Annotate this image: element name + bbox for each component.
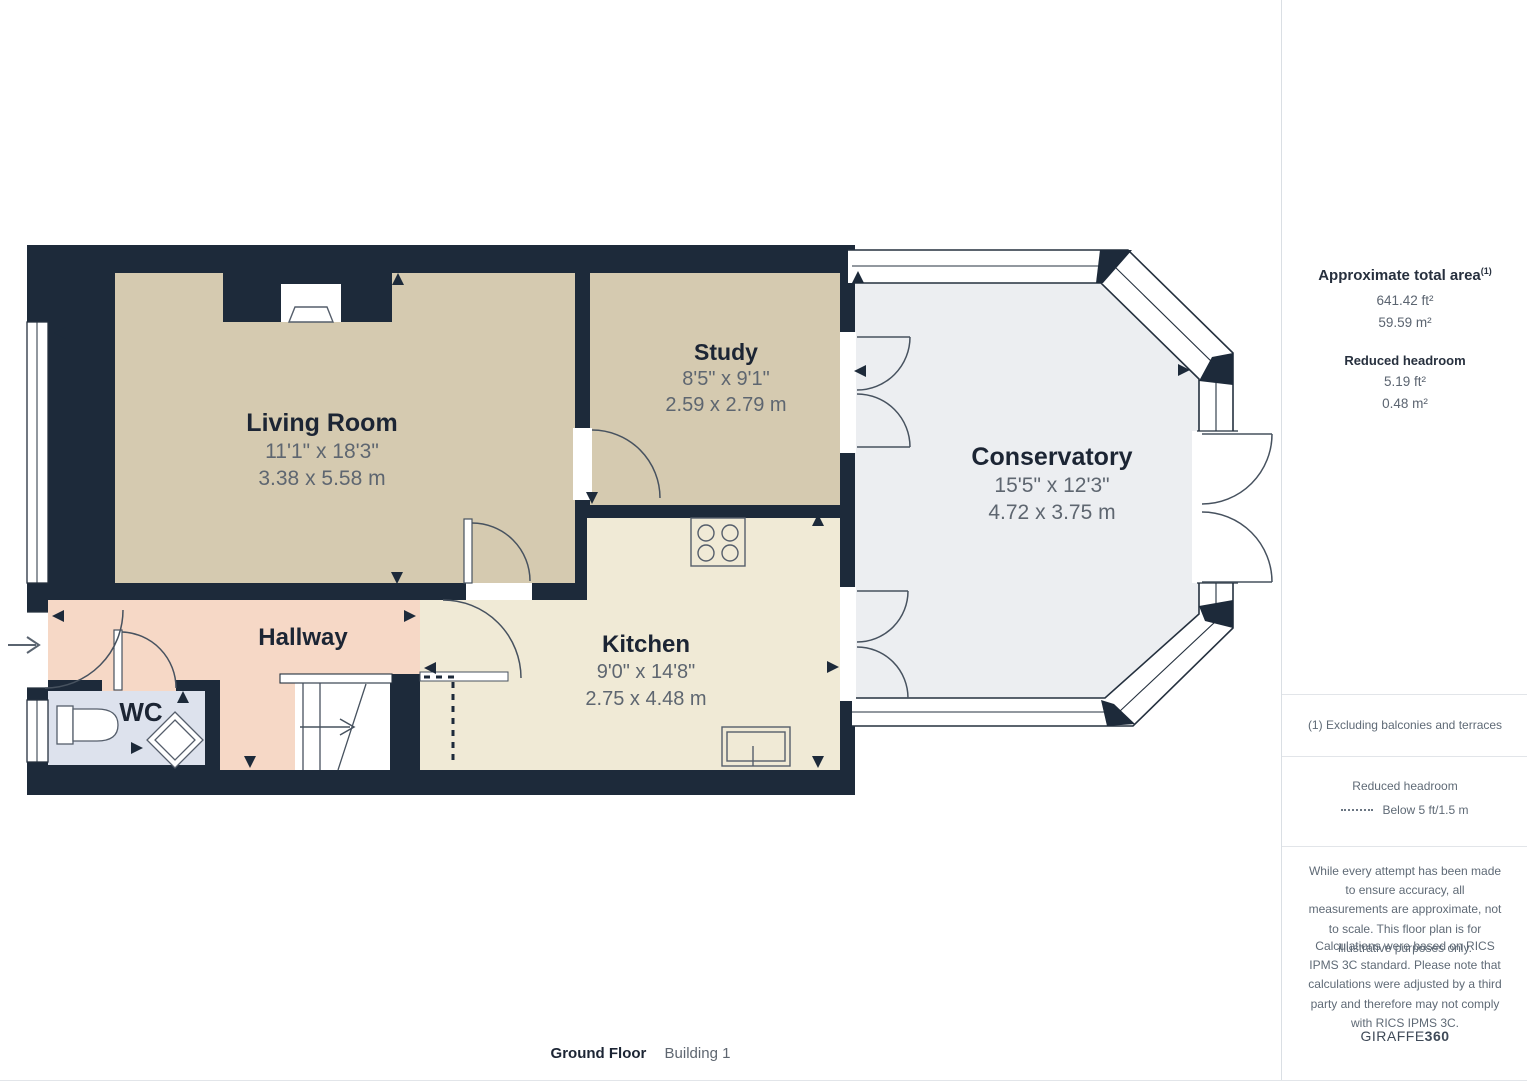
room-dim-ft: 8'5" x 9'1" bbox=[665, 366, 786, 392]
building-name: Building 1 bbox=[665, 1045, 731, 1062]
sidebar-divider bbox=[1282, 756, 1527, 757]
reduced-headroom-ft: 5.19 ft² bbox=[1282, 374, 1527, 389]
sidebar-divider bbox=[1282, 694, 1527, 695]
plan-footer: Ground Floor Building 1 bbox=[0, 1045, 1281, 1062]
legend-title: Reduced headroom bbox=[1282, 779, 1527, 793]
kitchen-door-leaf bbox=[420, 672, 508, 681]
living-door-opening bbox=[466, 583, 532, 600]
legend-label: Below 5 ft/1.5 m bbox=[1382, 803, 1468, 817]
room-name: WC bbox=[119, 698, 162, 726]
room-label-living-room: Living Room 11'1" x 18'3" 3.38 x 5.58 m bbox=[246, 408, 397, 492]
total-area-superscript: (1) bbox=[1481, 266, 1492, 276]
room-dim-ft: 11'1" x 18'3" bbox=[246, 438, 397, 465]
room-name: Conservatory bbox=[971, 442, 1132, 472]
kitchen-conservatory-opening bbox=[840, 587, 856, 701]
toilet bbox=[57, 706, 118, 744]
room-label-hallway: Hallway bbox=[258, 624, 347, 652]
floorplan-page: Living Room 11'1" x 18'3" 3.38 x 5.58 m … bbox=[0, 0, 1527, 1081]
room-label-conservatory: Conservatory 15'5" x 12'3" 4.72 x 3.75 m bbox=[971, 442, 1132, 526]
room-label-kitchen: Kitchen 9'0" x 14'8" 2.75 x 4.48 m bbox=[585, 630, 706, 713]
living-door-leaf bbox=[464, 519, 472, 583]
wc-wall-bottom bbox=[48, 765, 205, 775]
total-area-title-text: Approximate total area bbox=[1318, 267, 1481, 284]
room-dim-ft: 9'0" x 14'8" bbox=[585, 659, 706, 686]
sidebar-divider bbox=[1282, 846, 1527, 847]
brand-logo: GIRAFFE360 bbox=[1282, 1028, 1527, 1044]
study-door-opening bbox=[573, 428, 592, 500]
total-area-m: 59.59 m² bbox=[1282, 315, 1527, 330]
living-room-alcove-left bbox=[115, 273, 223, 323]
room-label-wc: WC bbox=[119, 698, 162, 726]
total-area-ft: 641.42 ft² bbox=[1282, 293, 1527, 308]
info-sidebar: Approximate total area(1) 641.42 ft² 59.… bbox=[1281, 0, 1527, 1080]
fireplace bbox=[281, 284, 341, 322]
wc-wall-right bbox=[205, 683, 220, 770]
living-room-alcove-right bbox=[392, 273, 575, 323]
study-conservatory-opening bbox=[840, 332, 856, 453]
stairs-bulkhead bbox=[280, 674, 392, 683]
room-name: Hallway bbox=[258, 624, 347, 652]
stairs bbox=[280, 674, 420, 770]
brand-name: GIRAFFE bbox=[1360, 1028, 1424, 1044]
room-label-study: Study 8'5" x 9'1" 2.59 x 2.79 m bbox=[665, 338, 786, 418]
room-name: Living Room bbox=[246, 408, 397, 438]
disclaimer-paragraph-2: Calculations were based on RICS IPMS 3C … bbox=[1305, 937, 1505, 1033]
footnote: (1) Excluding balconies and terraces bbox=[1282, 718, 1527, 732]
conservatory-door-opening bbox=[1192, 431, 1242, 583]
room-dim-m: 2.59 x 2.79 m bbox=[665, 392, 786, 418]
room-dim-m: 3.38 x 5.58 m bbox=[246, 465, 397, 492]
room-dim-m: 2.75 x 4.48 m bbox=[585, 686, 706, 713]
room-dim-m: 4.72 x 3.75 m bbox=[971, 499, 1132, 526]
room-name: Kitchen bbox=[585, 630, 706, 659]
stairs-wall bbox=[390, 674, 420, 770]
total-area-title: Approximate total area(1) bbox=[1282, 266, 1527, 285]
room-dim-ft: 15'5" x 12'3" bbox=[971, 472, 1132, 499]
room-name: Study bbox=[665, 338, 786, 366]
wc-door-opening bbox=[102, 680, 176, 691]
reduced-headroom-m: 0.48 m² bbox=[1282, 396, 1527, 411]
brand-bold: 360 bbox=[1425, 1028, 1450, 1044]
dotted-line-icon bbox=[1341, 809, 1373, 811]
floor-name: Ground Floor bbox=[551, 1045, 647, 1062]
kitchen-floor-lower bbox=[420, 600, 590, 770]
reduced-headroom-title: Reduced headroom bbox=[1282, 353, 1527, 368]
legend-row: Below 5 ft/1.5 m bbox=[1282, 803, 1527, 817]
